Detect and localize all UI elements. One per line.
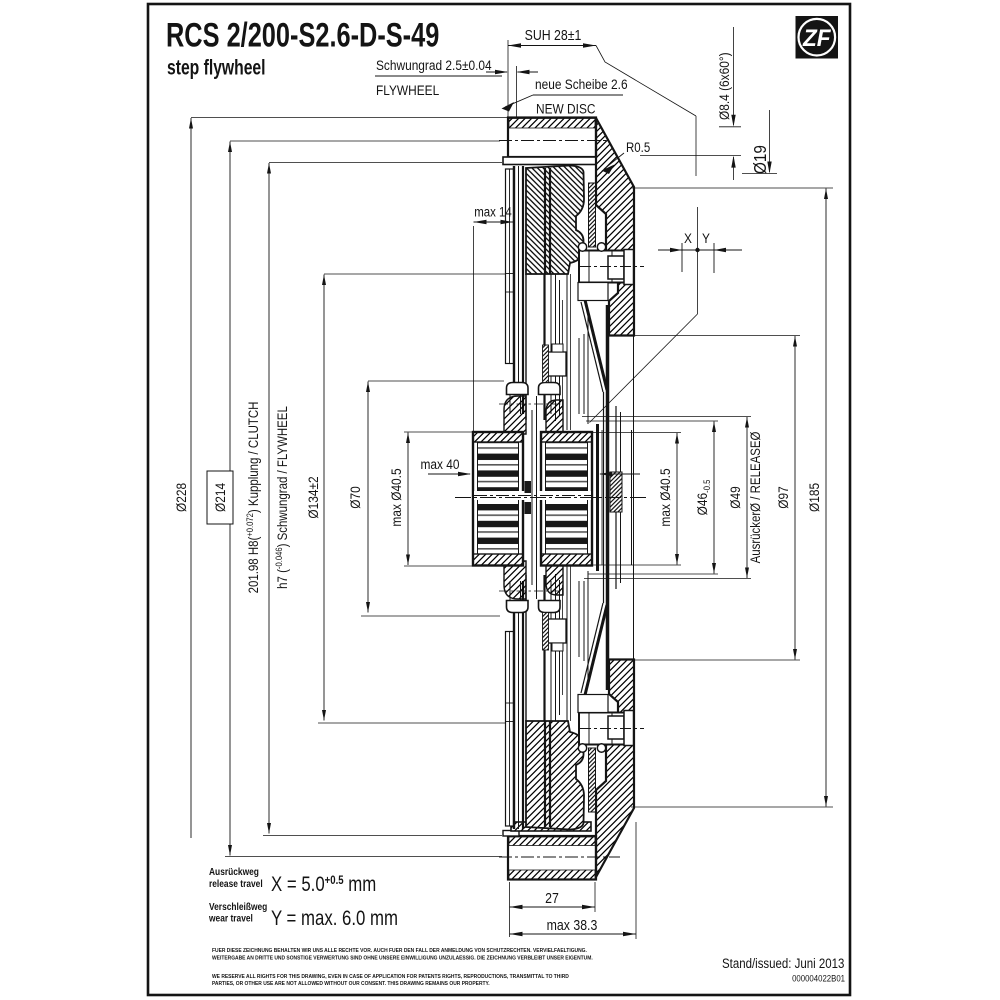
svg-text:FUER DIESE ZEICHNUNG BEHALTEN: FUER DIESE ZEICHNUNG BEHALTEN WIR UNS AL…: [212, 948, 587, 954]
svg-text:Schwungrad 2.5±0.04: Schwungrad 2.5±0.04: [376, 57, 492, 73]
svg-text:Ø228: Ø228: [173, 483, 189, 512]
svg-text:SUH 28±1: SUH 28±1: [525, 27, 582, 43]
svg-text:max 14: max 14: [474, 205, 512, 220]
svg-text:RCS 2/200-S2.6-D-S-49: RCS 2/200-S2.6-D-S-49: [166, 17, 439, 55]
svg-text:Ausrückweg: Ausrückweg: [209, 866, 259, 878]
svg-text:Ø214: Ø214: [212, 483, 228, 512]
svg-text:27: 27: [545, 890, 559, 906]
svg-text:NEW DISC: NEW DISC: [536, 101, 595, 117]
svg-text:max 40: max 40: [420, 456, 459, 472]
svg-text:Ø97: Ø97: [775, 486, 791, 508]
svg-text:FLYWHEEL: FLYWHEEL: [376, 82, 439, 98]
svg-text:R0.5: R0.5: [626, 140, 650, 155]
svg-text:WEITERGABE AN DRITTE UND SONST: WEITERGABE AN DRITTE UND SONSTIGE VERWER…: [212, 955, 593, 961]
svg-text:Stand/issued: Juni 2013: Stand/issued: Juni 2013: [722, 956, 844, 971]
svg-text:000004022B01: 000004022B01: [792, 973, 845, 984]
svg-text:WE RESERVE ALL RIGHTS FOR THIS: WE RESERVE ALL RIGHTS FOR THIS DRAWING, …: [212, 974, 569, 980]
svg-text:max Ø40.5: max Ø40.5: [388, 468, 404, 526]
svg-text:neue Scheibe 2.6: neue Scheibe 2.6: [535, 76, 628, 92]
svg-text:max 38.3: max 38.3: [547, 917, 598, 933]
svg-text:PARTIES, OR OTHER USE ARE NOT: PARTIES, OR OTHER USE ARE NOT ALLOWED WI…: [212, 981, 490, 987]
svg-text:wear travel: wear travel: [208, 913, 253, 925]
svg-text:Ø19: Ø19: [750, 145, 770, 174]
svg-text:Ø49: Ø49: [727, 486, 743, 508]
svg-text:Ø70: Ø70: [347, 486, 363, 508]
svg-text:step flywheel: step flywheel: [167, 55, 266, 79]
svg-text:AusrückerØ / RELEASEØ: AusrückerØ / RELEASEØ: [748, 431, 763, 563]
svg-text:Y: Y: [702, 230, 710, 246]
svg-text:ZF: ZF: [802, 24, 831, 51]
svg-text:Y = max. 6.0 mm: Y = max. 6.0 mm: [271, 907, 398, 930]
svg-text:201.98 H8(+0.072) Kupplung / C: 201.98 H8(+0.072) Kupplung / CLUTCH: [244, 402, 261, 594]
svg-text:release travel: release travel: [209, 878, 263, 890]
svg-text:Verschleißweg: Verschleißweg: [209, 901, 267, 913]
svg-text:X = 5.0+0.5 mm: X = 5.0+0.5 mm: [271, 873, 376, 896]
svg-text:max Ø40.5: max Ø40.5: [657, 468, 673, 526]
svg-text:X: X: [684, 230, 692, 246]
svg-text:Ø134±2: Ø134±2: [305, 476, 321, 518]
svg-text:Ø185: Ø185: [806, 483, 822, 512]
svg-text:Ø8.4 (6x60°): Ø8.4 (6x60°): [716, 52, 732, 120]
